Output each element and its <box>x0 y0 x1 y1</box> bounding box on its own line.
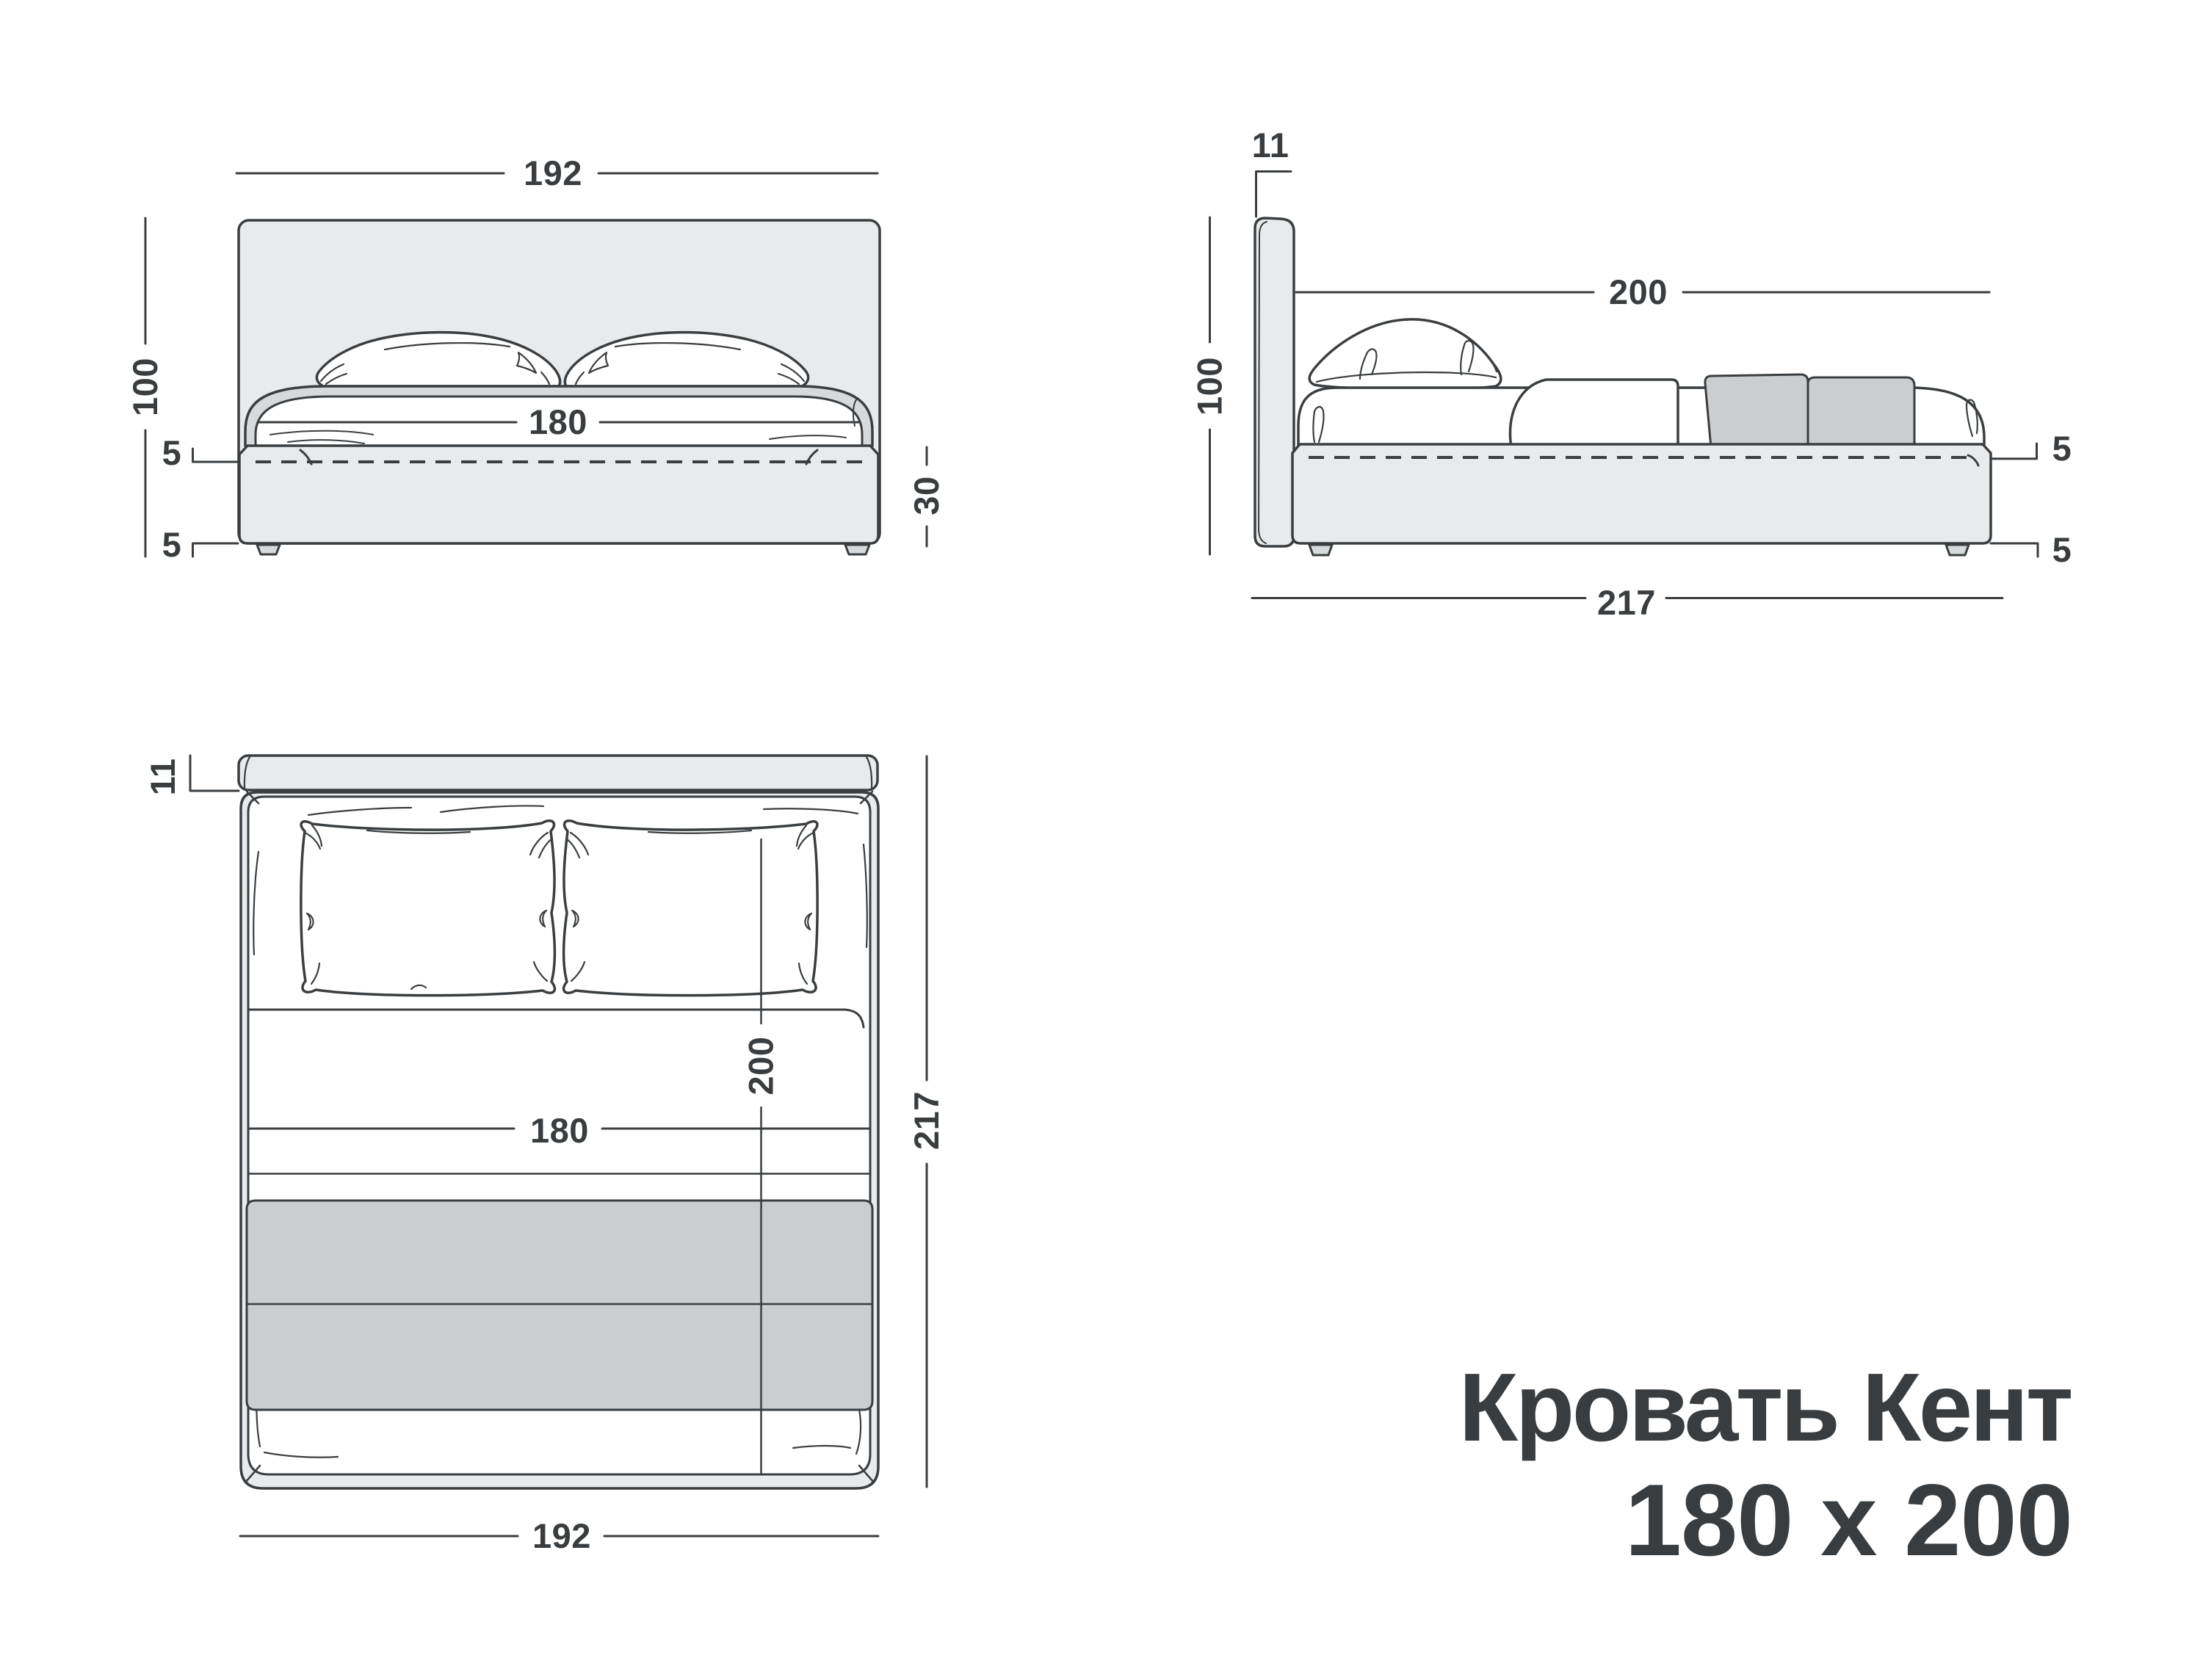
svg-text:200: 200 <box>1609 272 1668 311</box>
svg-text:217: 217 <box>1597 583 1656 622</box>
svg-text:5: 5 <box>162 525 182 564</box>
svg-text:192: 192 <box>532 1516 591 1555</box>
svg-text:11: 11 <box>143 758 182 796</box>
svg-text:11: 11 <box>1252 126 1289 164</box>
svg-text:30: 30 <box>907 476 946 515</box>
svg-text:192: 192 <box>524 153 582 192</box>
svg-text:180 x 200: 180 x 200 <box>1625 1463 2072 1577</box>
svg-text:Кровать Кент: Кровать Кент <box>1459 1353 2071 1461</box>
svg-text:180: 180 <box>529 402 587 441</box>
svg-text:5: 5 <box>2052 530 2072 569</box>
svg-text:100: 100 <box>1190 357 1229 416</box>
svg-text:5: 5 <box>2052 429 2072 468</box>
svg-text:100: 100 <box>126 358 164 416</box>
svg-text:217: 217 <box>907 1091 946 1150</box>
svg-text:180: 180 <box>530 1111 589 1150</box>
svg-text:5: 5 <box>162 433 182 472</box>
svg-text:200: 200 <box>742 1037 781 1096</box>
